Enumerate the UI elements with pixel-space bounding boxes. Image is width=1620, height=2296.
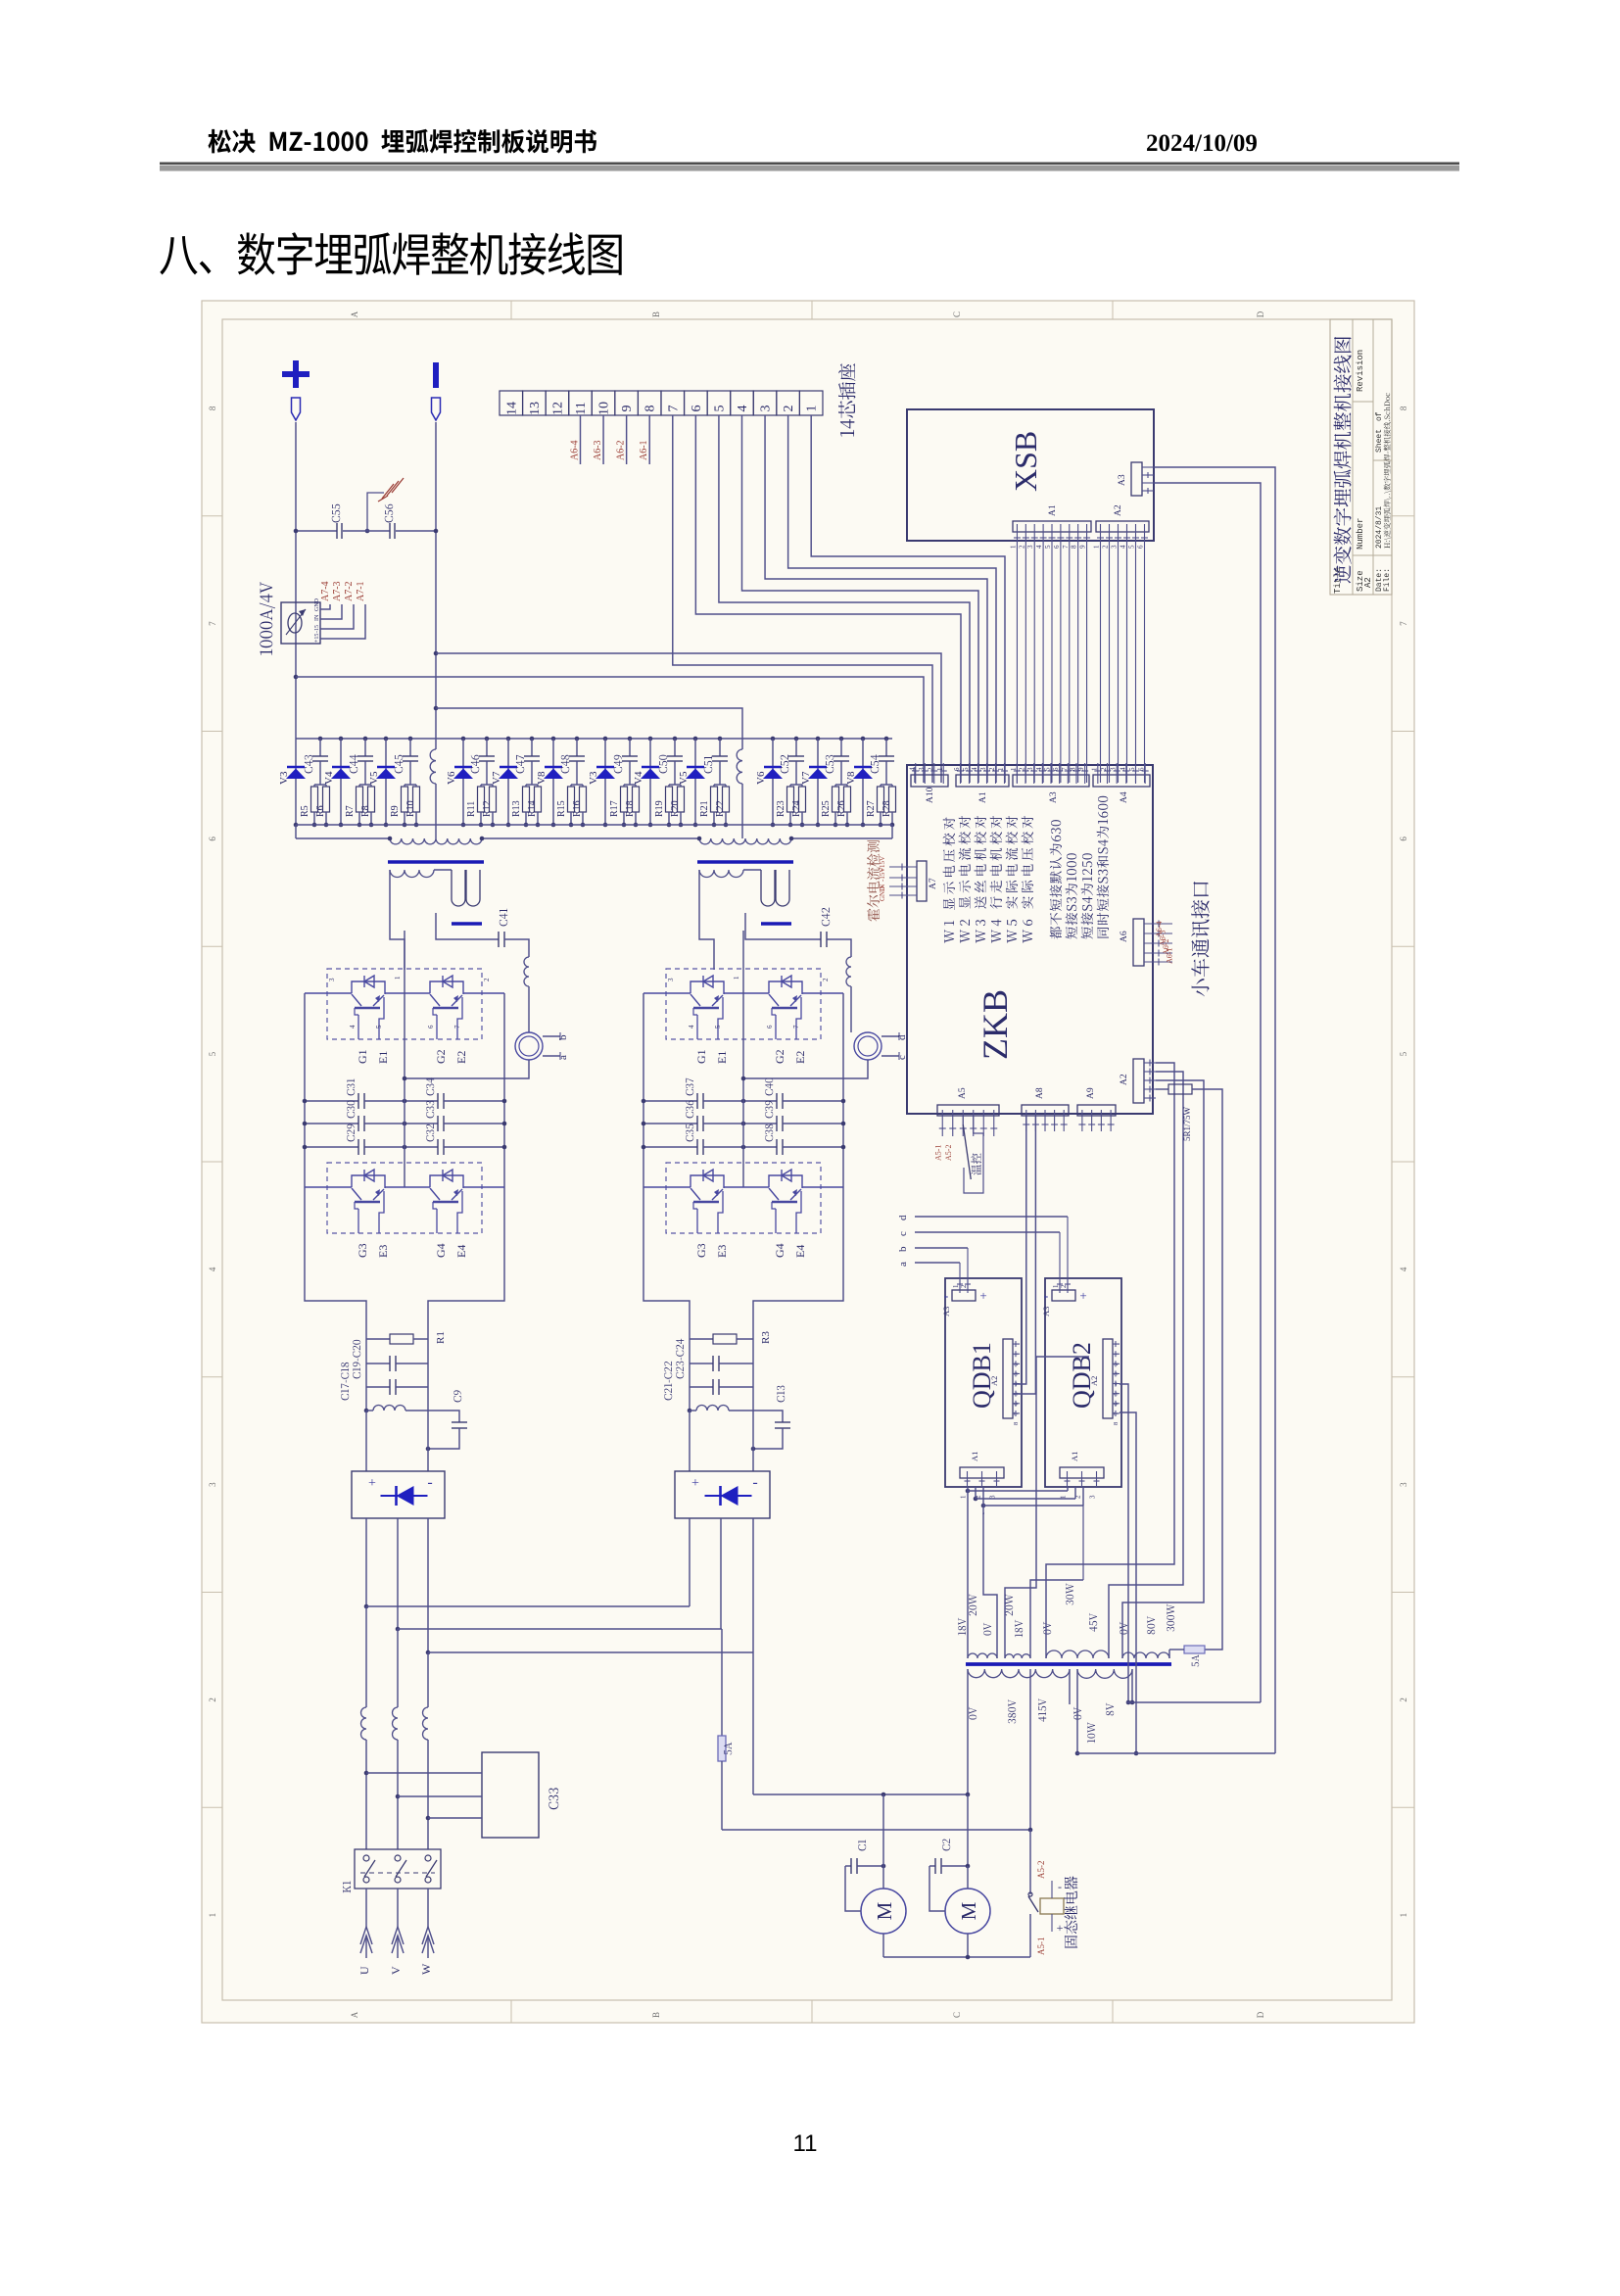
svg-text:3: 3 [979, 767, 987, 771]
svg-text:+: + [1057, 1921, 1064, 1935]
svg-text:V8: V8 [845, 771, 857, 785]
svg-text:c: c [897, 1231, 909, 1236]
svg-text:2024/10/09: 2024/10/09 [1146, 130, 1258, 157]
svg-text:R9: R9 [390, 805, 401, 817]
svg-text:A2: A2 [1363, 577, 1373, 588]
svg-text:3: 3 [1399, 1482, 1408, 1487]
svg-text:1: 1 [960, 1495, 968, 1499]
svg-text:A4: A4 [1120, 791, 1129, 803]
svg-text:2: 2 [483, 978, 491, 981]
svg-text:G1: G1 [356, 1049, 369, 1064]
svg-text:2: 2 [1102, 545, 1110, 549]
svg-text:A7: A7 [929, 878, 938, 889]
svg-text:R6: R6 [315, 805, 326, 817]
svg-text:3: 3 [1026, 767, 1034, 771]
svg-text:+: + [368, 1476, 376, 1491]
svg-text:A5-2: A5-2 [1036, 1861, 1046, 1880]
svg-text:R22: R22 [715, 800, 726, 817]
svg-text:E1: E1 [715, 1051, 729, 1064]
svg-text:-: - [1058, 1880, 1062, 1893]
svg-text:6: 6 [208, 837, 217, 841]
svg-text:11: 11 [574, 402, 589, 414]
svg-text:R12: R12 [482, 800, 493, 817]
svg-text:E4: E4 [454, 1245, 468, 1258]
svg-text:M: M [957, 1901, 980, 1920]
svg-text:R20: R20 [670, 800, 681, 817]
svg-text:1: 1 [1009, 545, 1017, 549]
svg-text:G2: G2 [434, 1049, 448, 1064]
svg-text:6: 6 [766, 1025, 774, 1028]
svg-text:b: b [897, 1246, 909, 1252]
svg-text:1: 1 [394, 976, 402, 980]
svg-text:G2: G2 [773, 1049, 786, 1064]
svg-text:A1: A1 [1048, 504, 1058, 516]
svg-text:1: 1 [1052, 1284, 1060, 1288]
svg-text:V6: V6 [755, 771, 767, 785]
svg-text:b: b [557, 1034, 569, 1040]
svg-text:R19: R19 [654, 800, 665, 817]
svg-text:5: 5 [1044, 767, 1052, 771]
svg-text:of: of [1375, 411, 1384, 421]
svg-text:9: 9 [1077, 767, 1085, 771]
svg-text:A6-1: A6-1 [639, 440, 649, 460]
svg-text:V7: V7 [800, 771, 812, 785]
svg-text:5: 5 [208, 1051, 217, 1056]
svg-text:G4: G4 [773, 1243, 786, 1258]
svg-text:A7-4: A7-4 [320, 581, 331, 601]
svg-text:2: 2 [782, 406, 796, 412]
svg-text:2: 2 [960, 1284, 968, 1288]
svg-text:G1: G1 [694, 1049, 708, 1064]
svg-text:8: 8 [1399, 406, 1408, 410]
svg-text:Sheet: Sheet [1375, 429, 1384, 453]
svg-text:1: 1 [1090, 767, 1098, 771]
svg-text:V3: V3 [588, 771, 599, 785]
svg-text:7: 7 [1399, 621, 1408, 626]
svg-text:A6-1: A6-1 [1166, 948, 1174, 964]
svg-text:A5-1: A5-1 [933, 1145, 942, 1161]
svg-text:d: d [897, 1215, 909, 1220]
svg-text:GND: GND [879, 886, 886, 901]
svg-text:3: 3 [667, 978, 675, 981]
svg-text:-: - [1044, 1289, 1049, 1304]
svg-text:A2: A2 [1114, 504, 1123, 516]
svg-text:7: 7 [1061, 767, 1069, 771]
svg-text:+: + [979, 1288, 986, 1303]
svg-text:4: 4 [1399, 1267, 1408, 1271]
svg-text:B: B [651, 2012, 661, 2018]
svg-text:4: 4 [908, 767, 916, 771]
svg-text:5: 5 [712, 406, 727, 412]
svg-text:C: C [952, 2012, 962, 2018]
svg-text:A5-1: A5-1 [1036, 1937, 1046, 1956]
svg-text:GND: GND [314, 598, 320, 611]
svg-text:E3: E3 [376, 1245, 390, 1258]
svg-text:C: C [952, 311, 962, 317]
svg-text:V8: V8 [536, 771, 548, 785]
svg-text:R27: R27 [866, 800, 877, 817]
svg-text:D: D [1256, 311, 1265, 317]
svg-text:+: + [1079, 1288, 1086, 1303]
svg-text:6: 6 [690, 406, 704, 412]
svg-text:2: 2 [988, 767, 996, 771]
svg-text:2: 2 [927, 767, 934, 771]
svg-text:4: 4 [1120, 545, 1127, 549]
svg-text:A: A [350, 311, 359, 317]
svg-text:R10: R10 [405, 800, 416, 817]
svg-text:R1: R1 [435, 1331, 447, 1344]
svg-text:G3: G3 [356, 1243, 369, 1258]
svg-text:8: 8 [208, 406, 217, 410]
svg-text:A2: A2 [989, 1376, 999, 1386]
svg-text:A5: A5 [958, 1087, 968, 1099]
svg-text:5: 5 [1399, 1051, 1408, 1056]
svg-text:2: 2 [208, 1698, 217, 1702]
svg-text:R13: R13 [511, 800, 522, 817]
svg-text:E2: E2 [454, 1051, 468, 1064]
svg-text:XSB: XSB [1008, 431, 1043, 492]
svg-text:A10: A10 [926, 787, 935, 803]
svg-text:8: 8 [1071, 545, 1078, 549]
svg-text:A6: A6 [1120, 931, 1129, 942]
svg-text:R15: R15 [556, 800, 567, 817]
svg-text:M: M [873, 1901, 896, 1920]
svg-text:R26: R26 [836, 800, 847, 817]
svg-text:A3: A3 [1118, 474, 1127, 486]
svg-text:V3: V3 [278, 771, 290, 785]
svg-text:Revision: Revision [1356, 350, 1365, 392]
svg-text:3: 3 [759, 406, 774, 412]
svg-text:2: 2 [1019, 767, 1026, 771]
svg-text:Number: Number [1356, 518, 1365, 550]
svg-text:14: 14 [504, 402, 519, 415]
svg-text:7: 7 [792, 1025, 800, 1028]
svg-text:4: 4 [1035, 767, 1043, 771]
svg-text:R5: R5 [300, 805, 310, 817]
svg-text:5: 5 [714, 1025, 722, 1028]
svg-text:V5: V5 [678, 771, 690, 785]
svg-text:3: 3 [328, 978, 336, 981]
svg-text:V7: V7 [491, 771, 502, 785]
svg-text:+: + [691, 1476, 699, 1491]
svg-text:5: 5 [1128, 545, 1136, 549]
svg-text:8: 8 [1070, 767, 1077, 771]
svg-text:1: 1 [936, 767, 944, 771]
svg-text:A3: A3 [1049, 791, 1059, 803]
svg-text:-: - [944, 1289, 949, 1304]
svg-text:U: U [357, 1966, 371, 1975]
svg-text:V4: V4 [323, 771, 335, 785]
svg-text:6: 6 [427, 1025, 435, 1028]
svg-text:1: 1 [1010, 767, 1018, 771]
svg-text:A6-4: A6-4 [569, 440, 580, 460]
svg-text:4: 4 [688, 1025, 695, 1028]
svg-text:1: 1 [997, 767, 1005, 771]
svg-text:V: V [389, 1966, 403, 1975]
svg-text:7: 7 [208, 621, 217, 626]
svg-text:R21: R21 [699, 800, 710, 817]
svg-text:2024/8/31: 2024/8/31 [1375, 506, 1384, 549]
svg-text:A7-2: A7-2 [344, 581, 355, 601]
svg-text:2: 2 [1399, 1698, 1408, 1702]
svg-text:V6: V6 [446, 771, 457, 785]
svg-text:A6-3: A6-3 [593, 440, 603, 460]
svg-text:A7-1: A7-1 [356, 581, 366, 601]
svg-text:11: 11 [793, 2130, 818, 2157]
svg-text:6: 6 [1137, 545, 1145, 549]
svg-text:R24: R24 [791, 800, 802, 817]
svg-text:2: 2 [822, 978, 830, 981]
svg-text:8: 8 [1113, 1422, 1120, 1425]
svg-text:A: A [350, 2011, 359, 2018]
svg-text:E4: E4 [793, 1245, 807, 1258]
svg-text:10: 10 [597, 402, 612, 415]
svg-text:7: 7 [453, 1025, 461, 1028]
svg-text:A8: A8 [1035, 1087, 1045, 1099]
svg-text:1: 1 [1093, 545, 1101, 549]
svg-text:7: 7 [1062, 545, 1070, 549]
svg-text:3: 3 [918, 767, 926, 771]
svg-text:R16: R16 [572, 800, 583, 817]
svg-text:A2: A2 [1120, 1074, 1129, 1085]
svg-text:6: 6 [953, 767, 961, 771]
svg-text:A3: A3 [1041, 1307, 1051, 1316]
svg-text:+15: +15 [314, 634, 320, 643]
svg-text:5: 5 [375, 1025, 383, 1028]
svg-text:2: 2 [1018, 545, 1025, 549]
svg-text:W: W [419, 1963, 433, 1975]
svg-text:6: 6 [1053, 545, 1061, 549]
svg-text:-: - [427, 1474, 432, 1491]
svg-text:3: 3 [1089, 1495, 1097, 1499]
svg-text:a: a [897, 1262, 909, 1267]
svg-text:R3: R3 [760, 1331, 772, 1344]
svg-text:QDB2: QDB2 [1068, 1342, 1096, 1409]
svg-text:R28: R28 [881, 800, 892, 817]
svg-text:A6-2: A6-2 [616, 440, 627, 460]
svg-text:4: 4 [349, 1025, 357, 1028]
svg-text:8: 8 [1013, 1422, 1020, 1425]
svg-text:13: 13 [528, 402, 543, 415]
svg-text:8: 8 [643, 406, 658, 412]
svg-text:1: 1 [952, 1284, 960, 1288]
svg-text:R18: R18 [625, 800, 636, 817]
svg-text:A5-2: A5-2 [944, 1145, 953, 1161]
svg-text:5: 5 [962, 767, 970, 771]
svg-text:5: 5 [1044, 545, 1052, 549]
svg-text:A2: A2 [1089, 1376, 1099, 1386]
svg-text:2: 2 [1060, 1284, 1068, 1288]
svg-text:ZKB: ZKB [976, 989, 1015, 1060]
svg-text:G4: G4 [434, 1243, 448, 1258]
svg-text:6: 6 [1399, 837, 1408, 841]
svg-text:1: 1 [805, 406, 820, 412]
svg-text:IN: IN [314, 614, 320, 621]
svg-text:1: 1 [733, 976, 740, 980]
svg-text:3: 3 [1110, 767, 1118, 771]
svg-text:V4: V4 [633, 771, 644, 785]
svg-text:R7: R7 [345, 805, 356, 817]
svg-text:R14: R14 [527, 800, 538, 817]
svg-text:A1: A1 [970, 1452, 979, 1461]
svg-text:E1: E1 [376, 1051, 390, 1064]
svg-text:2: 2 [1100, 767, 1108, 771]
svg-text:R11: R11 [466, 801, 477, 817]
svg-text:-15V: -15V [879, 868, 886, 882]
svg-text:B: B [651, 311, 661, 317]
svg-text:R8: R8 [360, 805, 371, 817]
svg-text:E2: E2 [793, 1051, 807, 1064]
svg-text:12: 12 [550, 402, 565, 415]
svg-text:3: 3 [208, 1482, 217, 1487]
svg-text:a: a [557, 1055, 569, 1060]
svg-text:-: - [752, 1474, 757, 1491]
svg-text:D: D [1256, 2011, 1265, 2018]
svg-text:E3: E3 [715, 1245, 729, 1258]
svg-text:5R1/75W: 5R1/75W [1182, 1106, 1192, 1141]
svg-text:QDB1: QDB1 [968, 1342, 996, 1409]
svg-text:-15: -15 [314, 625, 320, 633]
svg-text:R23: R23 [776, 800, 786, 817]
svg-text:9: 9 [1079, 545, 1087, 549]
svg-text:A1: A1 [978, 791, 988, 803]
svg-text:1: 1 [1399, 1913, 1408, 1918]
svg-text:G3: G3 [694, 1243, 708, 1258]
svg-text:4: 4 [1035, 545, 1043, 549]
svg-text:R17: R17 [609, 800, 620, 817]
svg-text:File:: File: [1383, 568, 1392, 592]
svg-text:5: 5 [1128, 767, 1136, 771]
svg-text:7: 7 [666, 406, 681, 412]
svg-text:A9: A9 [1086, 1087, 1096, 1099]
svg-text:9: 9 [620, 406, 635, 412]
svg-text:A7-3: A7-3 [332, 581, 343, 601]
svg-text:1: 1 [208, 1913, 217, 1918]
svg-text:V5: V5 [368, 771, 380, 785]
svg-text:6: 6 [1052, 767, 1060, 771]
svg-text:4: 4 [208, 1267, 217, 1271]
svg-text:4: 4 [1119, 767, 1126, 771]
svg-text:4: 4 [736, 406, 750, 412]
svg-text:A1: A1 [1070, 1452, 1079, 1461]
svg-text:A3: A3 [941, 1307, 951, 1316]
svg-text:3: 3 [1026, 545, 1034, 549]
svg-text:4: 4 [971, 767, 978, 771]
svg-text:R25: R25 [821, 800, 832, 817]
svg-text:3: 3 [1111, 545, 1119, 549]
